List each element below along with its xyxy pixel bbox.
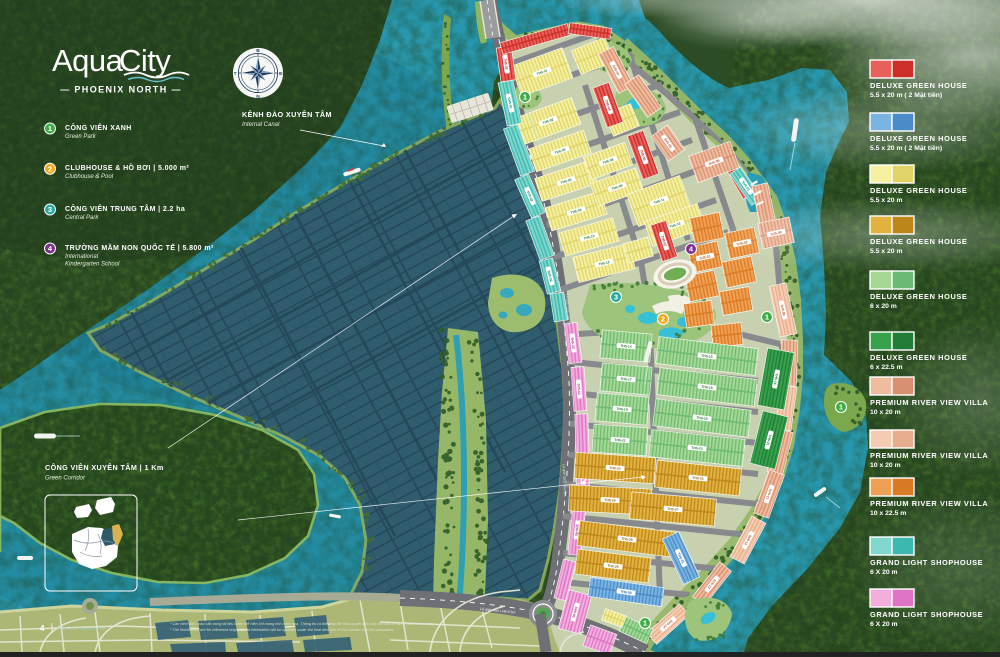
- svg-text:DELUXE GREEN HOUSE: DELUXE GREEN HOUSE: [870, 186, 967, 195]
- svg-text:TH5-22: TH5-22: [614, 438, 626, 443]
- svg-text:Phân khu Phoenix North: Phân khu Phoenix North: [57, 626, 106, 631]
- svg-text:1: 1: [48, 124, 52, 133]
- svg-text:KÊNH ĐÀO XUYÊN TÂM: KÊNH ĐÀO XUYÊN TÂM: [242, 110, 332, 119]
- svg-text:TH5-26: TH5-26: [604, 498, 616, 503]
- svg-text:1: 1: [643, 619, 647, 628]
- svg-text:5.5 x 20 m: 5.5 x 20 m: [870, 248, 903, 255]
- svg-text:6 x 20 m: 6 x 20 m: [870, 303, 897, 310]
- svg-text:10 x 20 m: 10 x 20 m: [870, 462, 901, 469]
- svg-text:4: 4: [40, 624, 45, 633]
- svg-text:Đ: Đ: [279, 71, 283, 77]
- svg-text:PREMIUM RIVER VIEW VILLA: PREMIUM RIVER VIEW VILLA: [870, 398, 988, 407]
- svg-text:1: 1: [765, 313, 769, 322]
- svg-text:City: City: [119, 43, 171, 78]
- svg-text:6 X 20 m: 6 X 20 m: [870, 569, 898, 576]
- svg-text:Green Park: Green Park: [65, 134, 97, 140]
- svg-text:— PHOENIX NORTH —: — PHOENIX NORTH —: [60, 85, 182, 95]
- svg-text:GRAND LIGHT SHOPHOUSE: GRAND LIGHT SHOPHOUSE: [870, 558, 983, 567]
- svg-text:Clubhouse & Pool: Clubhouse & Pool: [65, 174, 114, 180]
- svg-text:DELUXE GREEN HOUSE: DELUXE GREEN HOUSE: [870, 81, 967, 90]
- svg-text:GRAND LIGHT SHOPHOUSE: GRAND LIGHT SHOPHOUSE: [870, 610, 983, 619]
- svg-text:DELUXE GREEN HOUSE: DELUXE GREEN HOUSE: [870, 292, 967, 301]
- svg-text:CÔNG VIÊN XANH: CÔNG VIÊN XANH: [65, 123, 132, 132]
- svg-text:5.5 x 20 m ( 2 Mặt tiền): 5.5 x 20 m ( 2 Mặt tiền): [870, 90, 942, 99]
- svg-text:6 X 20 m: 6 X 20 m: [870, 621, 898, 628]
- svg-text:1: 1: [523, 93, 527, 102]
- svg-text:B: B: [256, 48, 260, 54]
- svg-text:PREMIUM RIVER VIEW VILLA: PREMIUM RIVER VIEW VILLA: [870, 451, 988, 460]
- svg-text:5.5 x 20 m: 5.5 x 20 m: [870, 197, 903, 204]
- svg-text:Central Park: Central Park: [65, 215, 99, 221]
- svg-text:* The illustrations are for re: * The illustrations are for reference on…: [170, 628, 394, 632]
- svg-text:DELUXE GREEN HOUSE: DELUXE GREEN HOUSE: [870, 134, 967, 143]
- svg-text:Kindergarten School: Kindergarten School: [65, 262, 120, 268]
- svg-text:T: T: [234, 71, 237, 77]
- svg-text:3: 3: [48, 205, 52, 214]
- svg-text:DELUXE GREEN HOUSE: DELUXE GREEN HOUSE: [870, 353, 967, 362]
- svg-text:10 x 22.5 m: 10 x 22.5 m: [870, 510, 906, 517]
- svg-text:* Các hình ảnh, màu sắc trong: * Các hình ảnh, màu sắc trong tài liệu đ…: [170, 621, 435, 626]
- svg-text:N: N: [256, 94, 260, 100]
- svg-text:2: 2: [661, 315, 665, 324]
- svg-text:10 x 20 m: 10 x 20 m: [870, 409, 901, 416]
- svg-text:DELUXE GREEN HOUSE: DELUXE GREEN HOUSE: [870, 237, 967, 246]
- svg-text:2: 2: [48, 164, 52, 173]
- svg-text:Aqua: Aqua: [52, 43, 124, 78]
- svg-text:5.5 x 20 m ( 2 Mặt tiền): 5.5 x 20 m ( 2 Mặt tiền): [870, 143, 942, 152]
- svg-text:3: 3: [614, 293, 618, 302]
- svg-text:CÔNG VIÊN TRUNG TÂM | 2.2 ha: CÔNG VIÊN TRUNG TÂM | 2.2 ha: [65, 204, 185, 213]
- svg-text:Internal Canal: Internal Canal: [242, 122, 280, 128]
- svg-text:TH5-24: TH5-24: [609, 466, 621, 471]
- svg-text:CÔNG VIÊN XUYÊN TÂM | 1 Km: CÔNG VIÊN XUYÊN TÂM | 1 Km: [45, 463, 164, 472]
- svg-text:1: 1: [839, 403, 843, 412]
- svg-text:SV5-03: SV5-03: [576, 383, 581, 395]
- svg-text:International: International: [65, 254, 99, 260]
- svg-text:PREMIUM RIVER VIEW VILLA: PREMIUM RIVER VIEW VILLA: [870, 499, 988, 508]
- svg-text:6 x 22.5 m: 6 x 22.5 m: [870, 364, 903, 371]
- svg-text:Green Corridor: Green Corridor: [45, 476, 86, 482]
